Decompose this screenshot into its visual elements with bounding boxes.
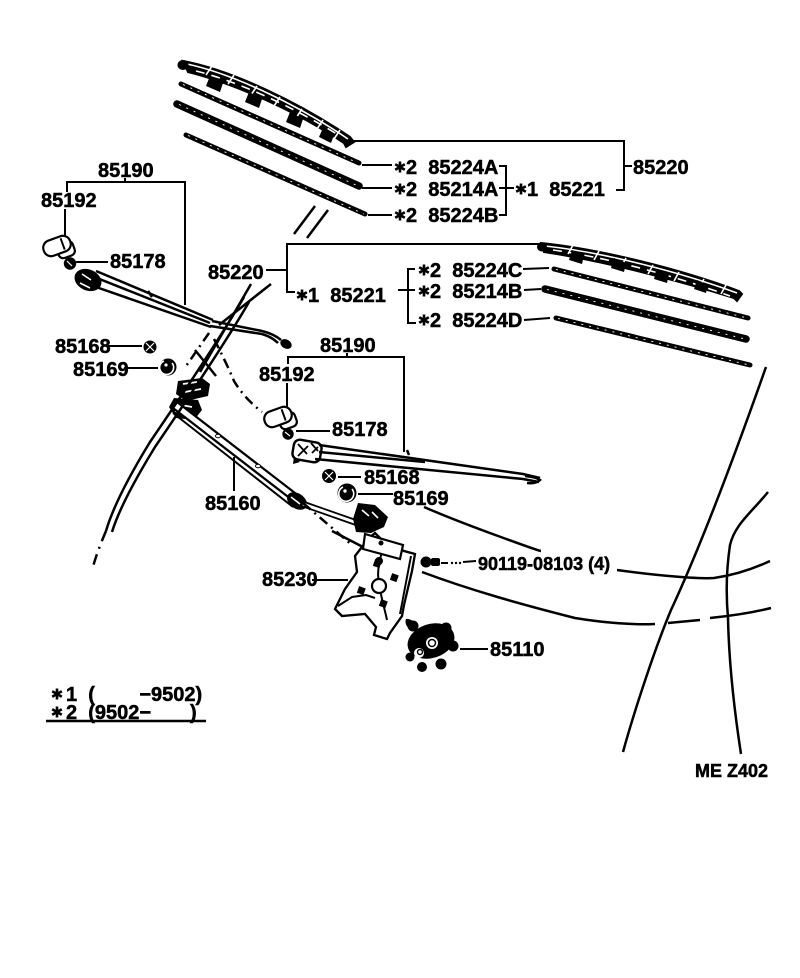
svg-text:2 85224A: 2 85224A — [406, 157, 498, 179]
svg-text:85169: 85169 — [73, 359, 129, 381]
svg-text:85168: 85168 — [364, 467, 420, 489]
svg-text:1 85221: 1 85221 — [308, 285, 386, 307]
svg-text:85169: 85169 — [393, 488, 449, 510]
svg-text:2 85224D: 2 85224D — [430, 310, 522, 332]
svg-text:85220: 85220 — [633, 157, 689, 179]
svg-text:90119-08103 (4): 90119-08103 (4) — [478, 554, 610, 574]
svg-text:1 85221: 1 85221 — [527, 179, 605, 201]
svg-text:85160: 85160 — [205, 493, 261, 515]
svg-text:2 85214A: 2 85214A — [406, 179, 498, 201]
svg-text:85192: 85192 — [259, 364, 315, 386]
svg-text:85110: 85110 — [490, 639, 545, 661]
svg-text:85178: 85178 — [110, 251, 166, 273]
svg-text:85168: 85168 — [55, 336, 111, 358]
svg-text:85220: 85220 — [208, 262, 264, 284]
svg-text:2 85214B: 2 85214B — [430, 281, 522, 303]
svg-text:85192: 85192 — [41, 190, 97, 212]
svg-text:2 85224B: 2 85224B — [406, 205, 498, 227]
svg-text:2 85224C: 2 85224C — [430, 260, 522, 282]
svg-text:85230: 85230 — [262, 569, 318, 591]
svg-text:ME Z402: ME Z402 — [695, 761, 768, 781]
svg-text:85178: 85178 — [332, 419, 388, 441]
